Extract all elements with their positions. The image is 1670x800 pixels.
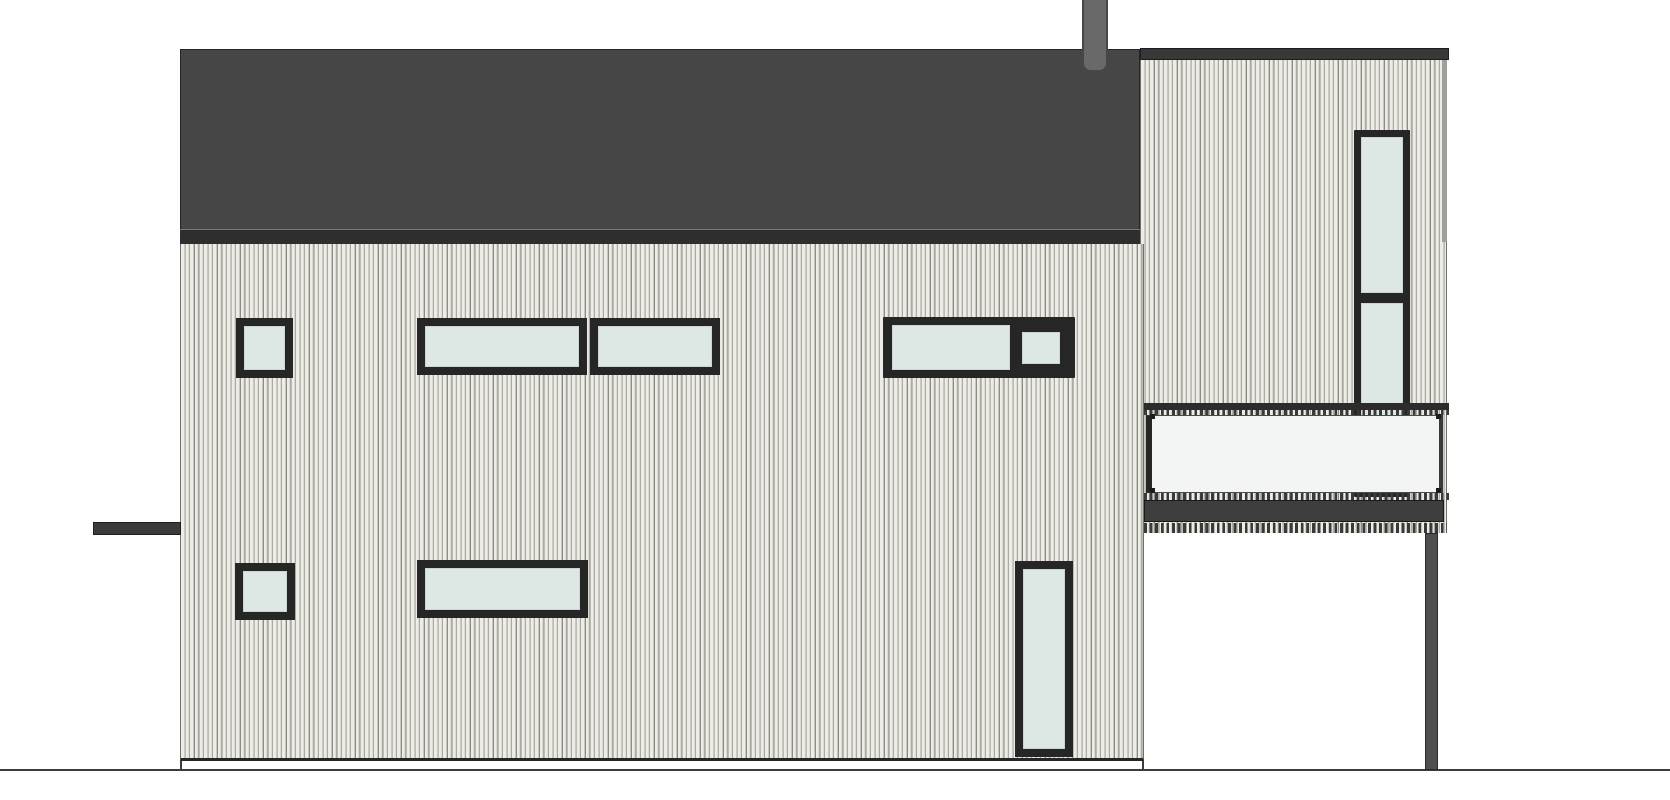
base-connector-left xyxy=(180,761,182,770)
main-roof xyxy=(180,49,1140,230)
window-upper-right-sash-glass xyxy=(1022,332,1060,364)
entry-canopy xyxy=(93,522,181,535)
balcony-panel xyxy=(1146,415,1443,493)
window-upper-mid-wide xyxy=(417,318,587,375)
tower-roof-band xyxy=(1140,48,1449,60)
balcony-support-post xyxy=(1425,533,1438,770)
balcony-slab xyxy=(1144,500,1444,522)
elevation-canvas xyxy=(0,0,1670,800)
panel-bolt-bottom-left xyxy=(1150,488,1155,493)
window-lower-mid-wide xyxy=(417,560,588,618)
balcony-balusters-mid xyxy=(1144,493,1449,500)
window-upper-right-glass-wide xyxy=(892,325,1010,370)
tower-corner-trim xyxy=(1442,60,1447,242)
panel-bolt-top-left xyxy=(1150,414,1155,419)
roof-fascia xyxy=(180,229,1140,245)
panel-bolt-top-right xyxy=(1436,414,1441,419)
tower-window-glass-upper xyxy=(1361,137,1403,293)
door-height-window xyxy=(1015,561,1073,757)
window-upper-left-square xyxy=(236,318,293,378)
balcony-rail xyxy=(1144,403,1449,410)
window-lower-left-square xyxy=(235,563,295,620)
base-connector-right xyxy=(1142,761,1144,770)
balcony-soffit-ticks xyxy=(1144,523,1447,533)
terrain-line xyxy=(0,769,1670,771)
window-upper-mid-right xyxy=(590,318,720,375)
panel-bolt-bottom-right xyxy=(1436,488,1441,493)
chimney xyxy=(1082,0,1108,72)
